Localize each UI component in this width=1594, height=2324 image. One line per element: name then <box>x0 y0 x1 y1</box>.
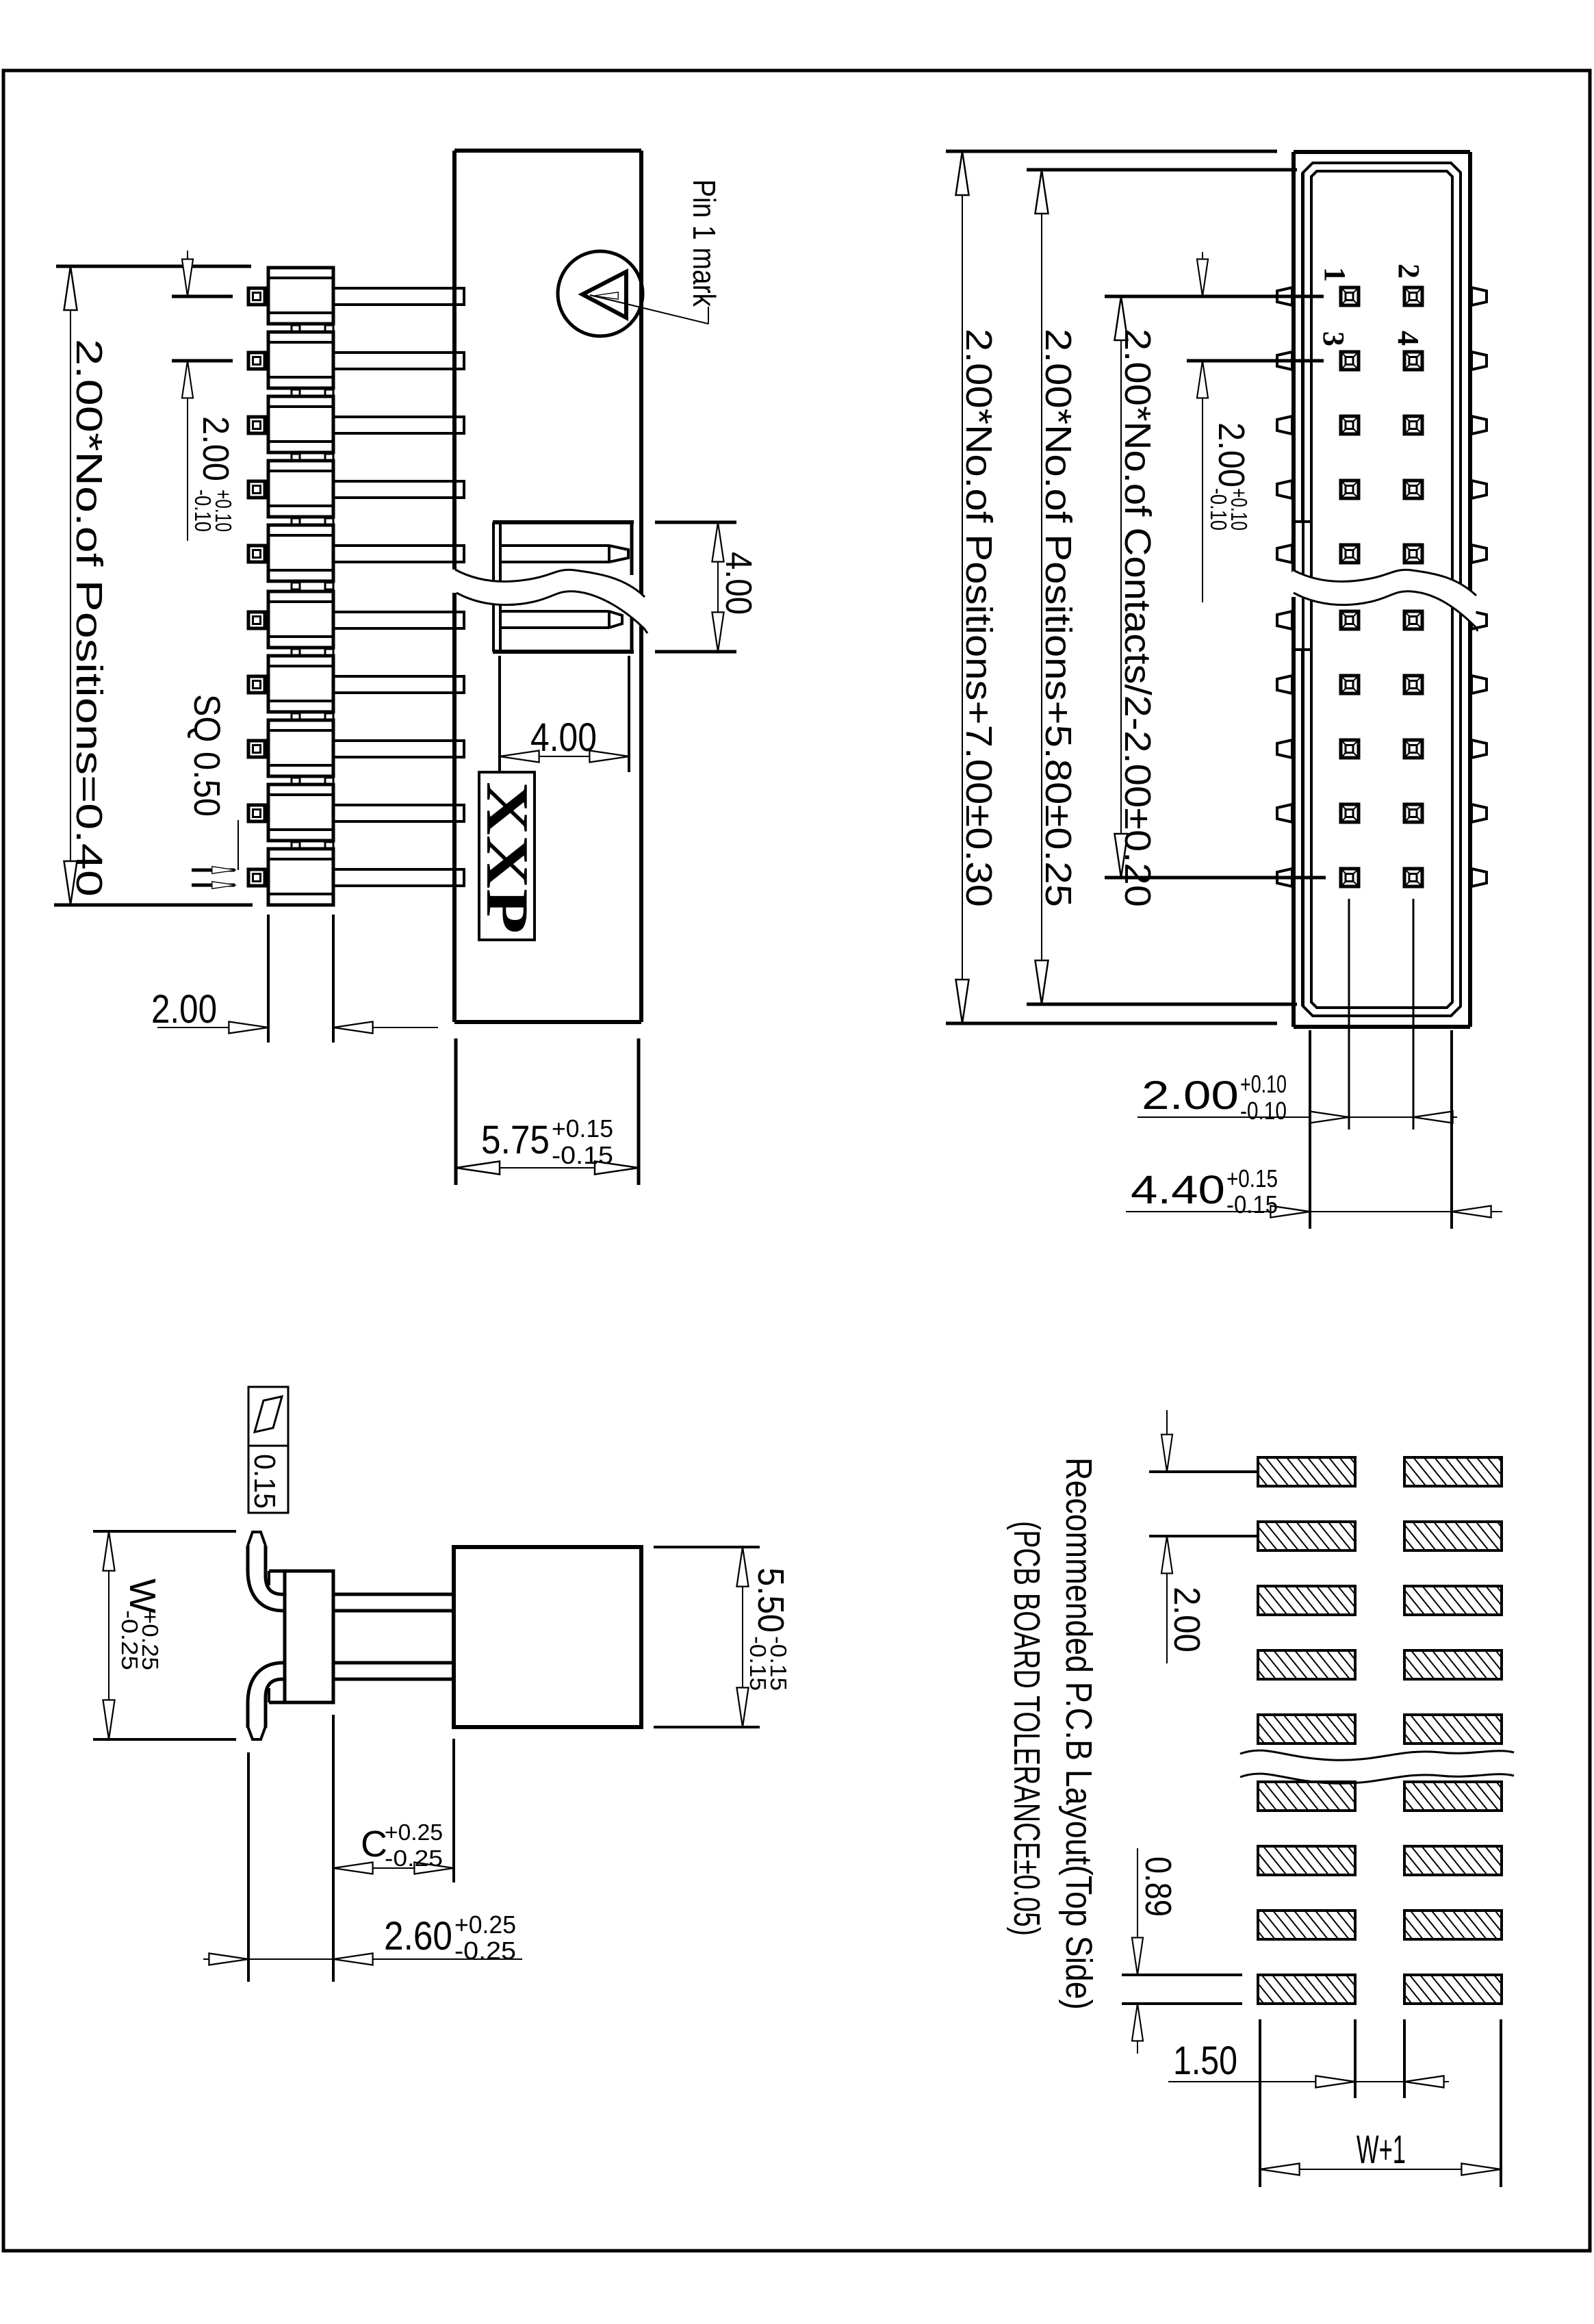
svg-text:-0.25: -0.25 <box>385 1846 443 1871</box>
svg-text:Recommended P.C.B Layout(Top S: Recommended P.C.B Layout(Top Side) <box>1058 1457 1099 2010</box>
svg-text:Pin 1 mark: Pin 1 mark <box>686 179 722 307</box>
svg-text:(PCB BOARD TOLERANCE±0.05): (PCB BOARD TOLERANCE±0.05) <box>1006 1521 1047 1936</box>
svg-text:2.00*No.of Positions=0.40: 2.00*No.of Positions=0.40 <box>68 339 110 897</box>
svg-text:2.00: 2.00 <box>195 416 236 481</box>
svg-text:5.50: 5.50 <box>750 1568 791 1633</box>
svg-text:C: C <box>361 1824 387 1865</box>
svg-text:2.00: 2.00 <box>1142 1073 1239 1118</box>
svg-text:0.89: 0.89 <box>1137 1856 1179 1917</box>
svg-text:+0.10: +0.10 <box>1240 1070 1287 1098</box>
svg-text:-0.15: -0.15 <box>552 1141 613 1169</box>
svg-text:-0.10: -0.10 <box>1206 488 1231 531</box>
svg-text:SQ 0.50: SQ 0.50 <box>186 694 227 817</box>
svg-text:1.50: 1.50 <box>1173 2039 1237 2083</box>
svg-text:-0.25: -0.25 <box>454 1937 516 1965</box>
svg-text:2: 2 <box>1392 264 1426 279</box>
svg-text:W+1: W+1 <box>1357 2128 1406 2172</box>
svg-text:-0.15: -0.15 <box>745 1636 771 1691</box>
svg-text:4.00: 4.00 <box>718 552 759 615</box>
svg-text:4.40: 4.40 <box>1131 1168 1225 1212</box>
svg-text:2.00*No.of Positions+5.80±0.25: 2.00*No.of Positions+5.80±0.25 <box>1038 329 1079 907</box>
svg-text:-0.10: -0.10 <box>1240 1097 1287 1125</box>
svg-text:4: 4 <box>1391 331 1425 346</box>
svg-text:2.00: 2.00 <box>1211 422 1252 487</box>
svg-text:3: 3 <box>1317 331 1350 346</box>
svg-text:4.00: 4.00 <box>530 715 597 760</box>
svg-text:5.75: 5.75 <box>481 1118 550 1162</box>
svg-text:XXP: XXP <box>474 782 540 934</box>
svg-text:-0.10: -0.10 <box>190 489 216 532</box>
svg-text:+0.25: +0.25 <box>385 1819 443 1845</box>
svg-text:2.00*No.of Positions+7.00±0.30: 2.00*No.of Positions+7.00±0.30 <box>958 329 999 907</box>
svg-text:1: 1 <box>1318 267 1352 282</box>
svg-text:2.60: 2.60 <box>384 1914 452 1958</box>
svg-text:2.00: 2.00 <box>1166 1587 1207 1652</box>
svg-text:2.00*No.of Contacts/2-2.00±0.2: 2.00*No.of Contacts/2-2.00±0.20 <box>1117 329 1158 907</box>
svg-text:0.15: 0.15 <box>248 1454 281 1509</box>
svg-text:-0.25: -0.25 <box>117 1610 142 1670</box>
svg-text:-0.15: -0.15 <box>1226 1190 1278 1218</box>
svg-text:2.00: 2.00 <box>151 987 217 1032</box>
svg-text:+0.15: +0.15 <box>552 1114 613 1142</box>
svg-text:+0.15: +0.15 <box>1226 1164 1278 1192</box>
svg-text:W: W <box>122 1579 163 1613</box>
svg-text:+0.25: +0.25 <box>454 1911 516 1939</box>
